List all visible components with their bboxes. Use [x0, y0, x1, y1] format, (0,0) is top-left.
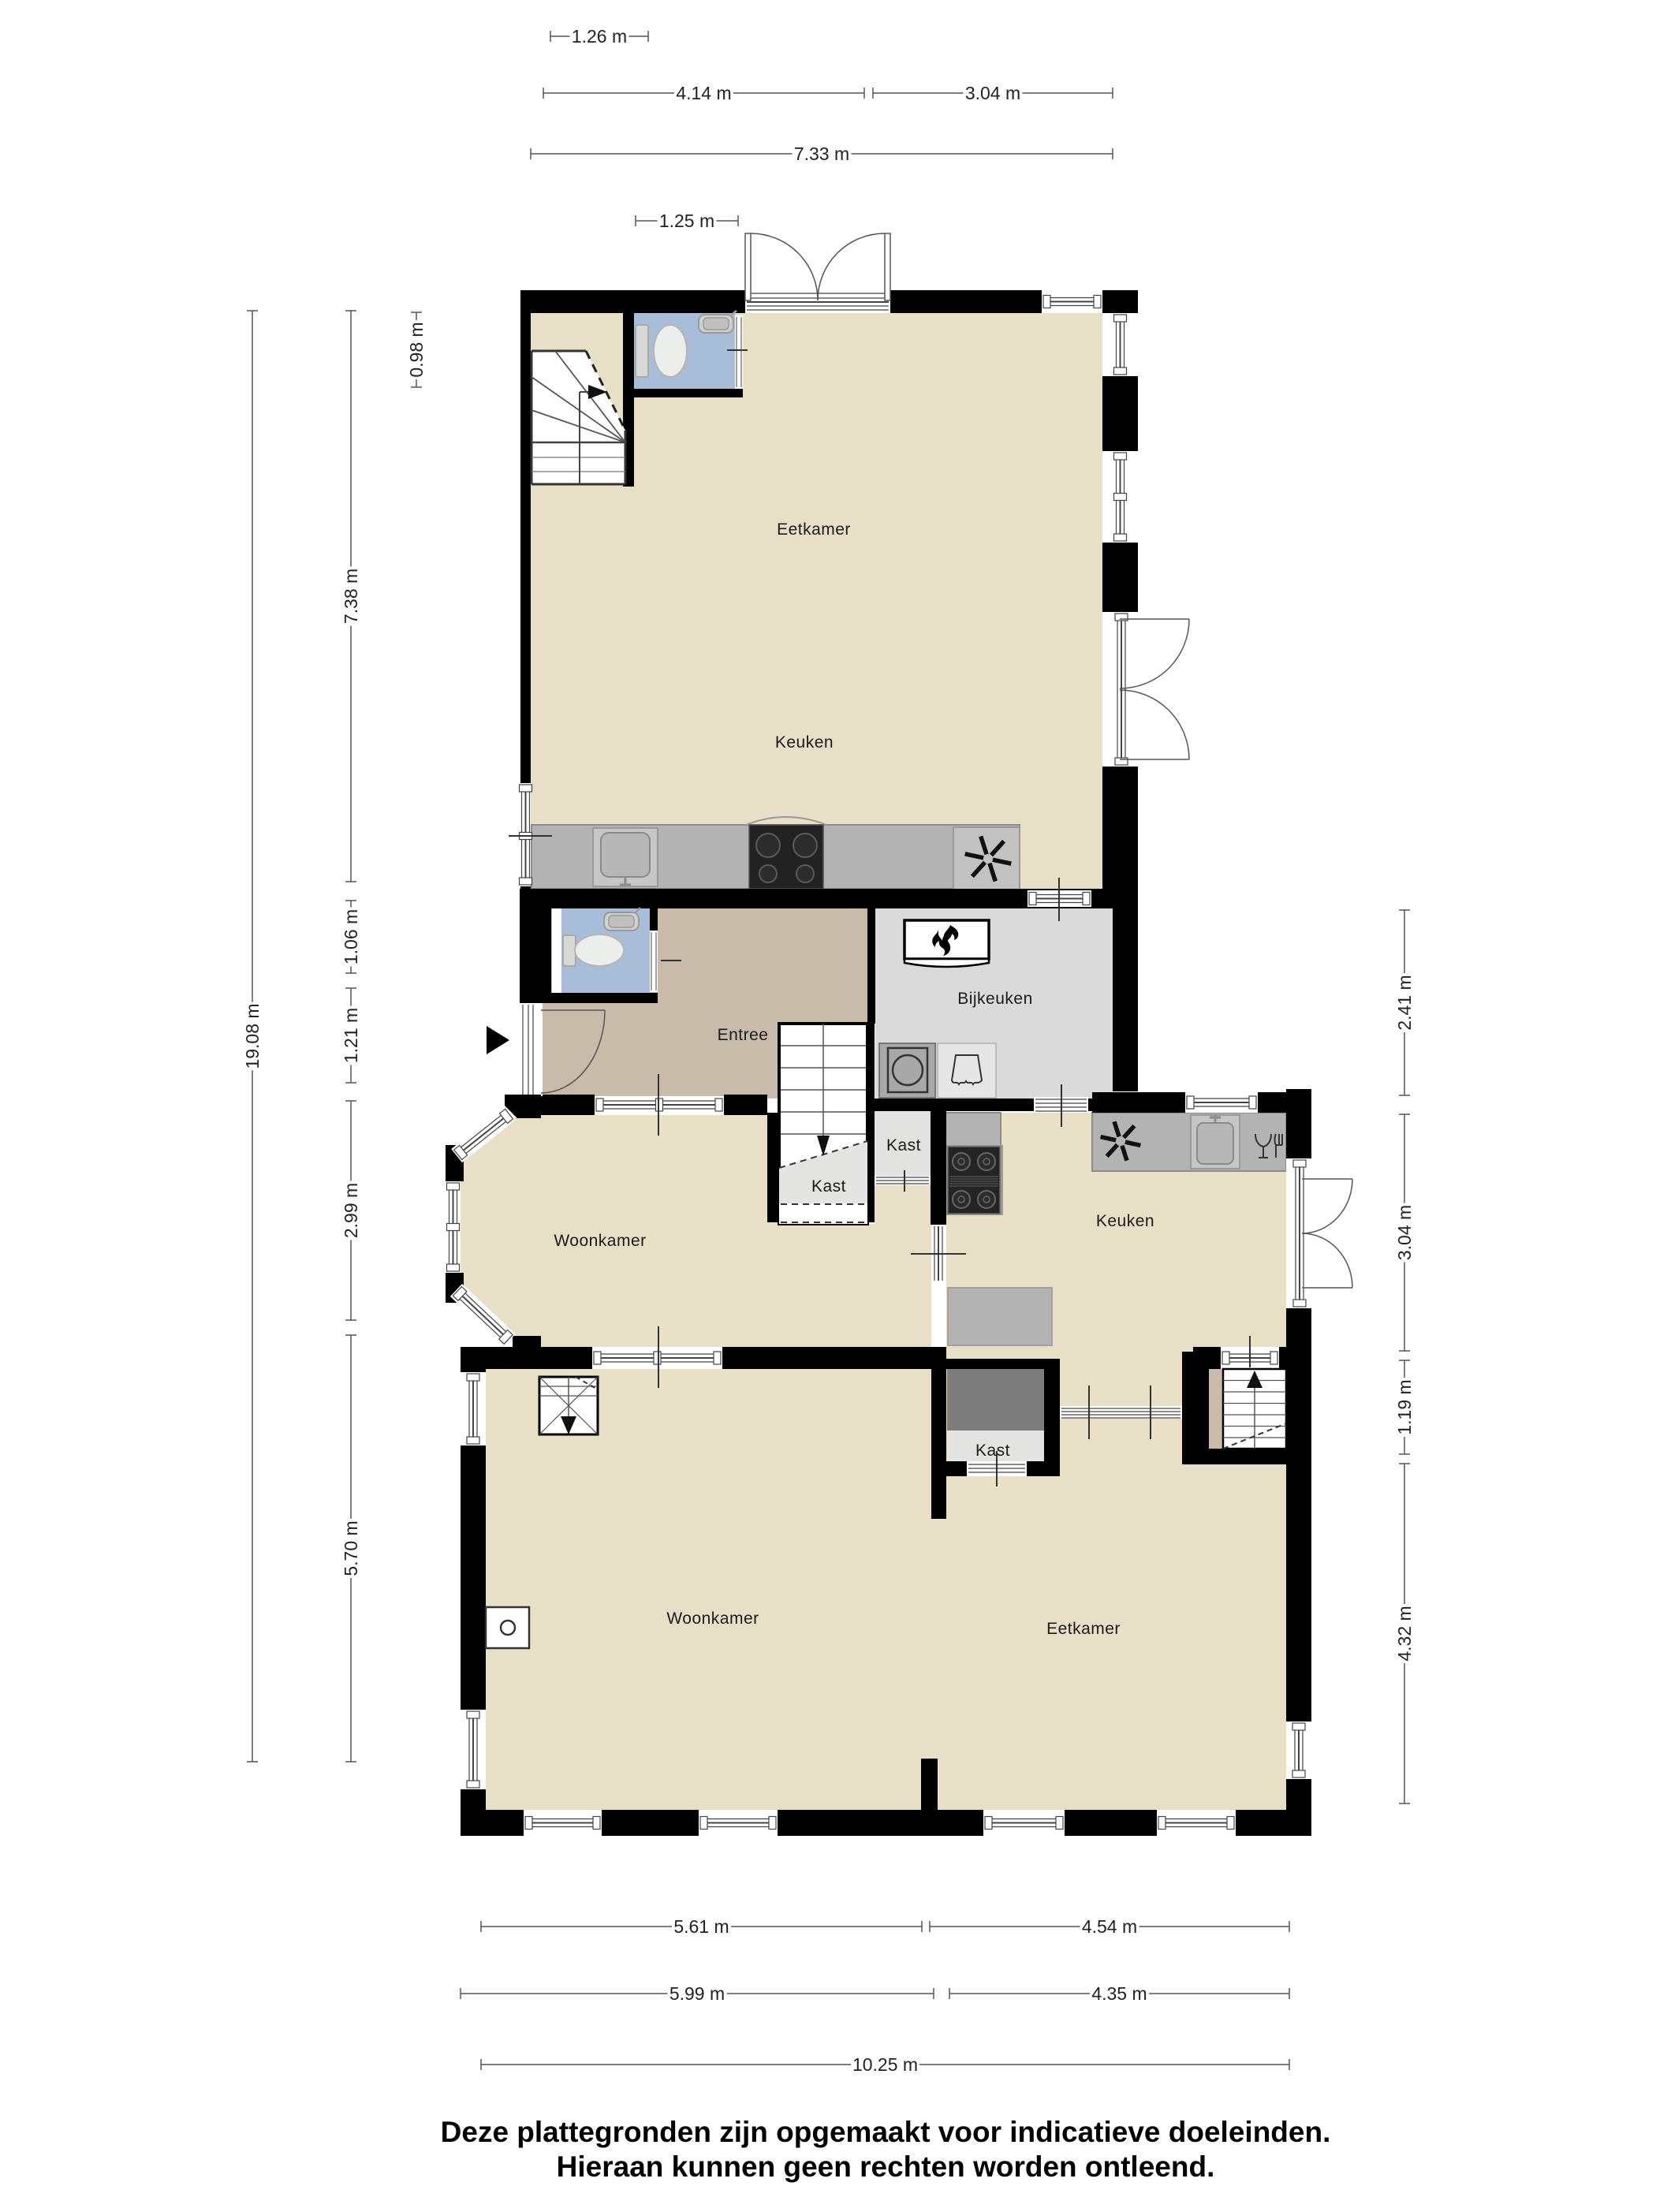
svg-text:Hieraan kunnen geen rechten wo: Hieraan kunnen geen rechten worden ontle…	[557, 2150, 1215, 2183]
svg-text:Kast: Kast	[811, 1177, 846, 1196]
svg-text:1.21 m: 1.21 m	[341, 1008, 361, 1063]
svg-text:4.14 m: 4.14 m	[676, 83, 731, 103]
svg-text:Kast: Kast	[886, 1136, 921, 1154]
svg-text:2.99 m: 2.99 m	[341, 1183, 361, 1238]
svg-text:5.99 m: 5.99 m	[669, 1983, 725, 2004]
svg-text:Eetkamer: Eetkamer	[1046, 1620, 1121, 1638]
svg-text:Kast: Kast	[975, 1442, 1010, 1460]
svg-text:Keuken: Keuken	[1096, 1212, 1154, 1230]
svg-text:1.26 m: 1.26 m	[572, 26, 627, 47]
svg-text:19.08 m: 19.08 m	[242, 1003, 263, 1069]
svg-text:1.06 m: 1.06 m	[341, 909, 361, 964]
svg-text:5.61 m: 5.61 m	[673, 1916, 729, 1937]
svg-text:3.04 m: 3.04 m	[965, 83, 1020, 103]
svg-text:Eetkamer: Eetkamer	[777, 520, 851, 539]
svg-text:Woonkamer: Woonkamer	[554, 1232, 646, 1250]
svg-text:4.54 m: 4.54 m	[1082, 1916, 1137, 1937]
svg-text:0.98 m: 0.98 m	[406, 322, 427, 377]
svg-text:10.25 m: 10.25 m	[852, 2054, 918, 2075]
svg-text:5.70 m: 5.70 m	[341, 1520, 361, 1576]
svg-text:Entree: Entree	[718, 1026, 769, 1044]
svg-text:2.41 m: 2.41 m	[1394, 975, 1415, 1030]
svg-text:7.33 m: 7.33 m	[794, 144, 849, 164]
svg-text:3.04 m: 3.04 m	[1394, 1205, 1415, 1260]
svg-text:Woonkamer: Woonkamer	[666, 1610, 759, 1628]
svg-text:Bijkeuken: Bijkeuken	[957, 990, 1033, 1008]
svg-text:Keuken: Keuken	[775, 733, 834, 752]
svg-text:4.35 m: 4.35 m	[1091, 1983, 1147, 2004]
svg-text:1.25 m: 1.25 m	[659, 211, 714, 231]
svg-text:1.19 m: 1.19 m	[1394, 1379, 1415, 1434]
svg-text:4.32 m: 4.32 m	[1394, 1606, 1415, 1661]
svg-text:Deze plattegronden zijn opgema: Deze plattegronden zijn opgemaakt voor i…	[441, 2116, 1331, 2148]
svg-text:7.38 m: 7.38 m	[341, 569, 361, 624]
